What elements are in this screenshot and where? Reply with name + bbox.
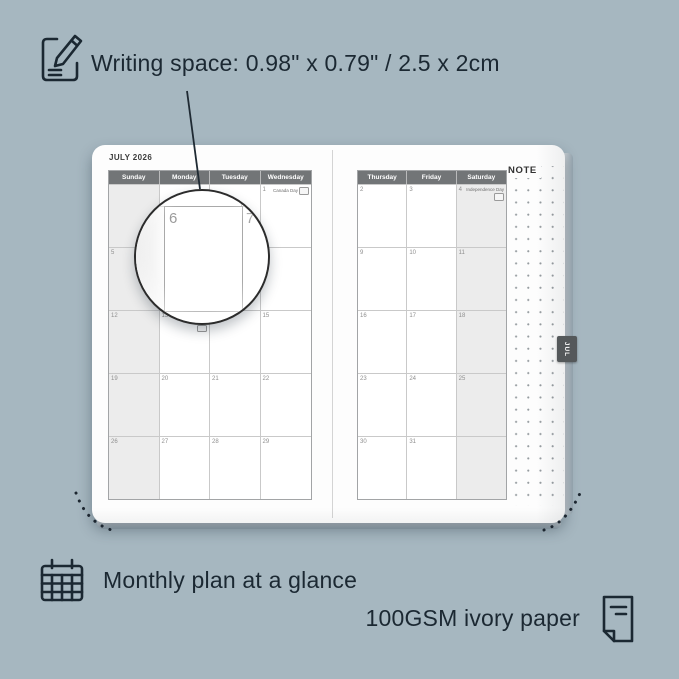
paper-icon — [598, 593, 638, 645]
pencil-note-icon — [38, 33, 84, 85]
monthly-plan-annotation: Monthly plan at a glance — [103, 567, 357, 594]
writing-space-annotation: Writing space: 0.98" x 0.79" / 2.5 x 2cm — [91, 50, 500, 77]
month-tab-label: JUL — [564, 341, 571, 356]
product-image: Writing space: 0.98" x 0.79" / 2.5 x 2cm… — [0, 0, 679, 679]
paper-annotation: 100GSM ivory paper — [365, 605, 580, 632]
month-tab: JUL — [557, 336, 577, 362]
loupe-vignette — [136, 191, 268, 323]
calendar-icon — [38, 556, 86, 604]
magnifier-loupe: 6 7 — [134, 189, 270, 325]
